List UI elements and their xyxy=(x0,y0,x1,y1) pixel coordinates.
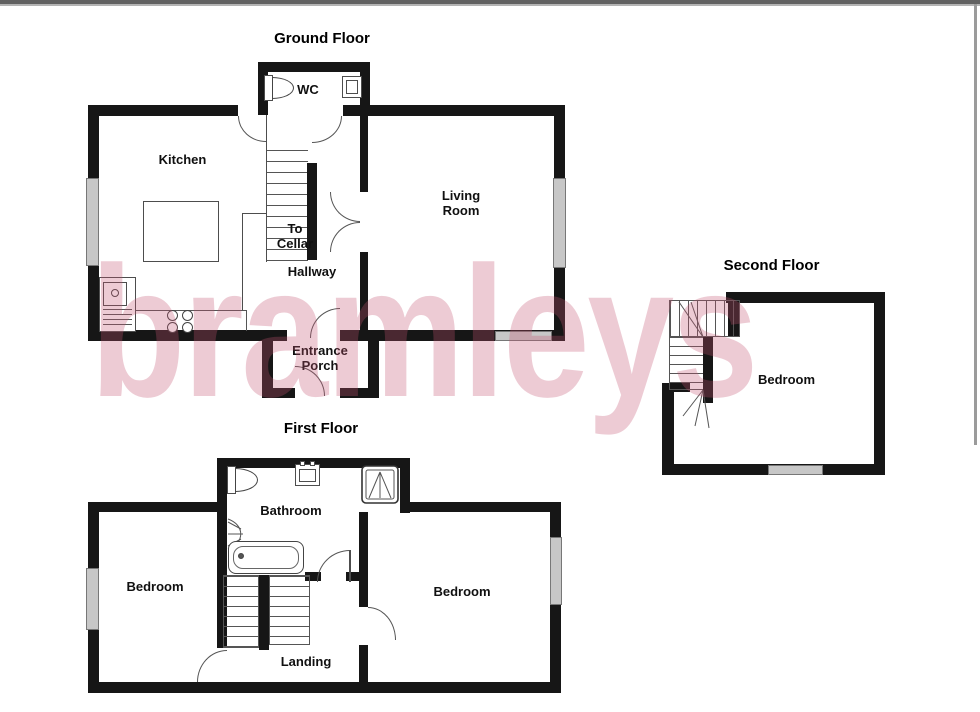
gf-livingroom-wall-lower xyxy=(360,252,368,331)
ff-bedroom-right-window xyxy=(550,537,562,605)
ff-outer-wall-top-right xyxy=(400,502,561,512)
bathroom-bathtub-tap-symbol xyxy=(238,553,244,559)
gf-french-door-lower-arc xyxy=(330,222,360,252)
entrance-porch-label: Entrance Porch xyxy=(278,343,362,374)
ff-stairs-right-flight xyxy=(269,575,310,645)
gf-kitchen-window xyxy=(86,178,99,266)
bathroom-basin-tap-2 xyxy=(310,461,315,466)
bathroom-basin-bowl-symbol xyxy=(299,469,316,482)
gf-livingroom-wall-upper xyxy=(360,116,368,192)
ff-wall-landing-bedroomR-lower xyxy=(359,645,368,693)
ff-stairs-left-flight xyxy=(223,575,259,648)
kitchen-label: Kitchen xyxy=(140,152,225,167)
gf-livingroom-window-bottom xyxy=(495,331,552,341)
ff-bedroomR-door-arc xyxy=(368,607,396,640)
gf-hallway-door-arc xyxy=(310,308,340,338)
gf-porch-wall-bottom-right xyxy=(340,388,379,398)
ff-wall-landing-bedroomR-upper xyxy=(359,512,368,607)
second-floor-title: Second Floor xyxy=(694,257,849,274)
sf-stairs-winder-lines xyxy=(669,300,741,432)
kitchen-drainer-symbol xyxy=(103,309,132,329)
bathroom-toilet-bowl-symbol xyxy=(235,468,258,492)
bedroom-right-label: Bedroom xyxy=(421,584,503,599)
ground-floor-title: Ground Floor xyxy=(237,30,407,47)
ff-bathroom-door-leaf xyxy=(349,550,351,582)
gf-understairs-line-h xyxy=(242,213,267,214)
kitchen-sink-tap-symbol xyxy=(111,289,119,297)
sf-bedroom-window xyxy=(768,465,823,475)
gf-kitchen-door-arc xyxy=(238,116,266,142)
bathroom-shower-symbol xyxy=(361,465,400,505)
ff-bedroomL-door-arc xyxy=(197,650,227,682)
kitchen-island-symbol xyxy=(143,201,219,262)
ff-bathroom-door-arc xyxy=(317,550,350,582)
kitchen-hob-burner-2 xyxy=(182,310,193,321)
hallway-label: Hallway xyxy=(272,264,352,279)
living-room-label: Living Room xyxy=(426,188,496,219)
sf-outer-wall-right xyxy=(874,292,885,475)
gf-understairs-line-v xyxy=(242,213,243,310)
ff-outer-wall-top-left xyxy=(88,502,217,512)
kitchen-hob-burner-3 xyxy=(167,322,178,333)
gf-livingroom-window-right xyxy=(553,178,566,268)
ff-stairs-divider-wall xyxy=(259,575,269,650)
gf-outer-wall-top-right xyxy=(343,105,565,116)
gf-wc-wall-top xyxy=(258,62,370,72)
gf-outer-wall-top-left xyxy=(88,105,238,116)
ff-bedroom-left-window xyxy=(86,568,99,630)
to-cellar-label: To Cellar xyxy=(266,221,324,252)
first-floor-title: First Floor xyxy=(248,420,394,437)
gf-porch-wall-bottom-left xyxy=(262,388,295,398)
kitchen-hob-burner-4 xyxy=(182,322,193,333)
wc-basin-bowl-symbol xyxy=(346,80,358,94)
bathroom-label: Bathroom xyxy=(246,503,336,518)
bathroom-basin-tap-1 xyxy=(300,461,305,466)
gf-french-door-upper-arc xyxy=(330,192,360,222)
ff-outer-wall-bottom xyxy=(88,682,561,693)
kitchen-hob-burner-1 xyxy=(167,310,178,321)
floorplan-canvas: Ground Floor WC Kitchen To Cellar xyxy=(0,0,980,712)
gf-wc-door-arc xyxy=(312,116,342,143)
frame-top-bar-light xyxy=(0,4,980,6)
landing-label: Landing xyxy=(266,654,346,669)
sf-outer-wall-top xyxy=(726,292,885,303)
bedroom-left-label: Bedroom xyxy=(114,579,196,594)
wc-label: WC xyxy=(286,82,330,97)
sf-bedroom-label: Bedroom xyxy=(744,372,829,387)
frame-right-edge xyxy=(974,4,977,445)
